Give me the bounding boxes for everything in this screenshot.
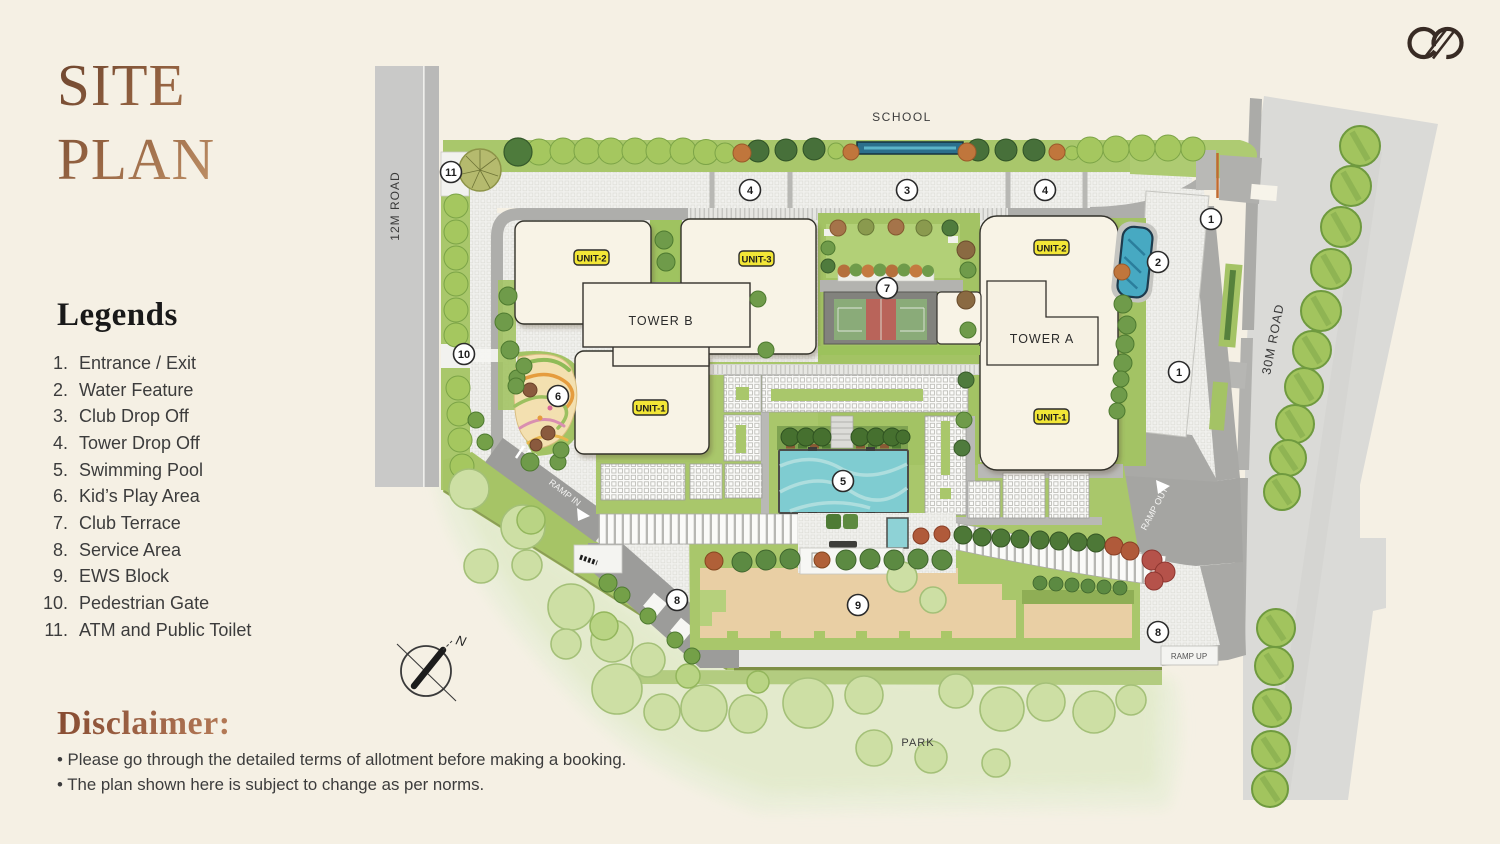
svg-text:3: 3: [904, 185, 910, 197]
svg-text:9: 9: [855, 600, 861, 612]
svg-text:N: N: [454, 632, 468, 649]
svg-text:PARK: PARK: [901, 737, 934, 749]
svg-text:6: 6: [555, 391, 561, 403]
svg-text:10: 10: [458, 349, 470, 361]
svg-text:UNIT-2: UNIT-2: [576, 254, 606, 265]
svg-text:1: 1: [1208, 214, 1214, 226]
svg-text:11: 11: [445, 167, 457, 179]
svg-text:UNIT-1: UNIT-1: [1036, 413, 1067, 424]
svg-text:UNIT-2: UNIT-2: [1036, 244, 1066, 255]
svg-text:4: 4: [1042, 185, 1049, 197]
svg-text:4: 4: [747, 185, 754, 197]
svg-text:UNIT-3: UNIT-3: [741, 255, 771, 266]
svg-text:8: 8: [1155, 627, 1161, 639]
svg-text:5: 5: [840, 476, 846, 488]
svg-text:7: 7: [884, 283, 890, 295]
svg-text:SCHOOL: SCHOOL: [872, 110, 932, 124]
svg-text:RAMP UP: RAMP UP: [1171, 652, 1207, 661]
svg-text:TOWER A: TOWER A: [1010, 332, 1074, 346]
svg-text:TOWER B: TOWER B: [628, 314, 693, 328]
svg-text:1: 1: [1176, 367, 1182, 379]
svg-text:UNIT-1: UNIT-1: [635, 404, 666, 415]
svg-text:12M ROAD: 12M ROAD: [388, 171, 402, 240]
svg-text:8: 8: [674, 595, 680, 607]
svg-text:2: 2: [1155, 257, 1161, 269]
